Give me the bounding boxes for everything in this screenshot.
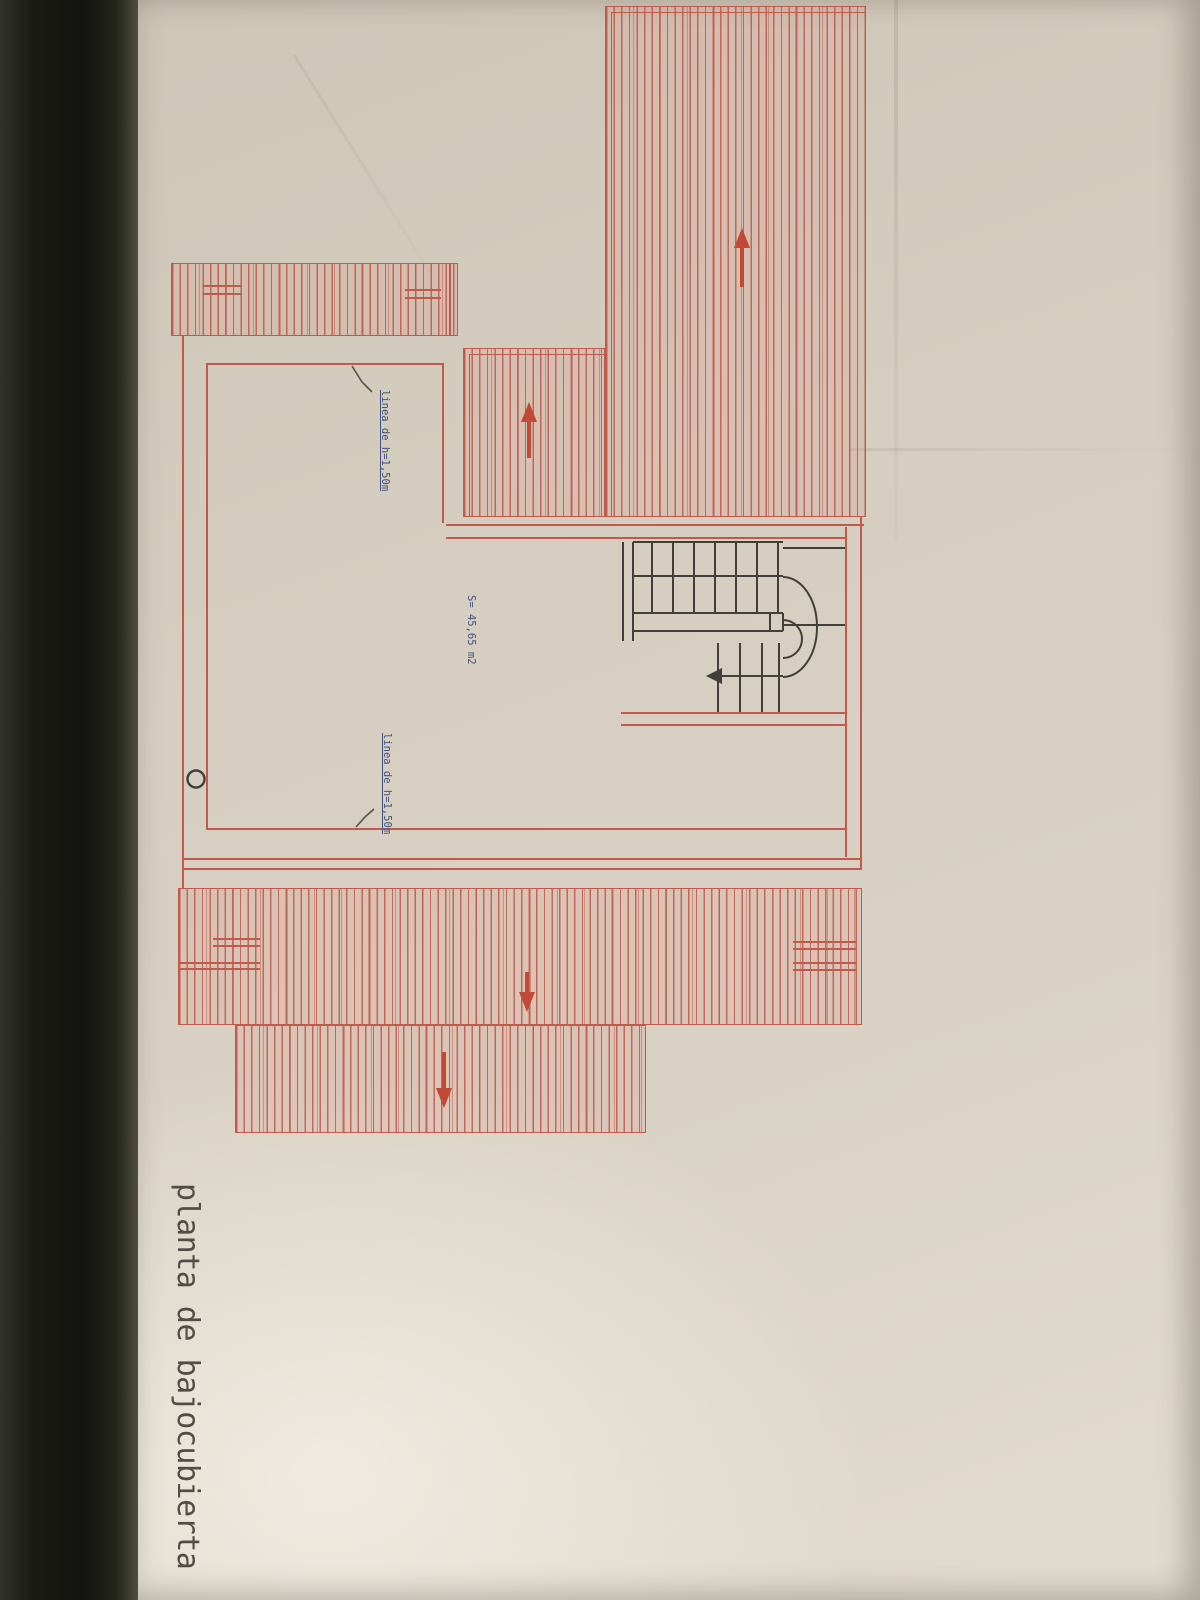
height-line-label-bottom: linea de h=1,50m — [380, 733, 393, 834]
stair-direction-arrow — [706, 668, 722, 684]
photo-of-drawing: linea de h=1,50m linea de h=1,50m S= 45,… — [0, 0, 1200, 1600]
leader-line-bottom — [356, 809, 374, 827]
roof-slope-arrows — [436, 228, 750, 1108]
sheet-title: planta de bajocubierta — [169, 1183, 205, 1569]
stair-u-shaped — [623, 542, 845, 712]
height-line-label-top: linea de h=1,50m — [378, 390, 391, 491]
column-circle — [188, 771, 205, 788]
area-label: S= 45,65 m2 — [464, 595, 477, 665]
leader-line-top — [352, 366, 372, 392]
floor-plan: linea de h=1,50m linea de h=1,50m S= 45,… — [0, 0, 1200, 1600]
